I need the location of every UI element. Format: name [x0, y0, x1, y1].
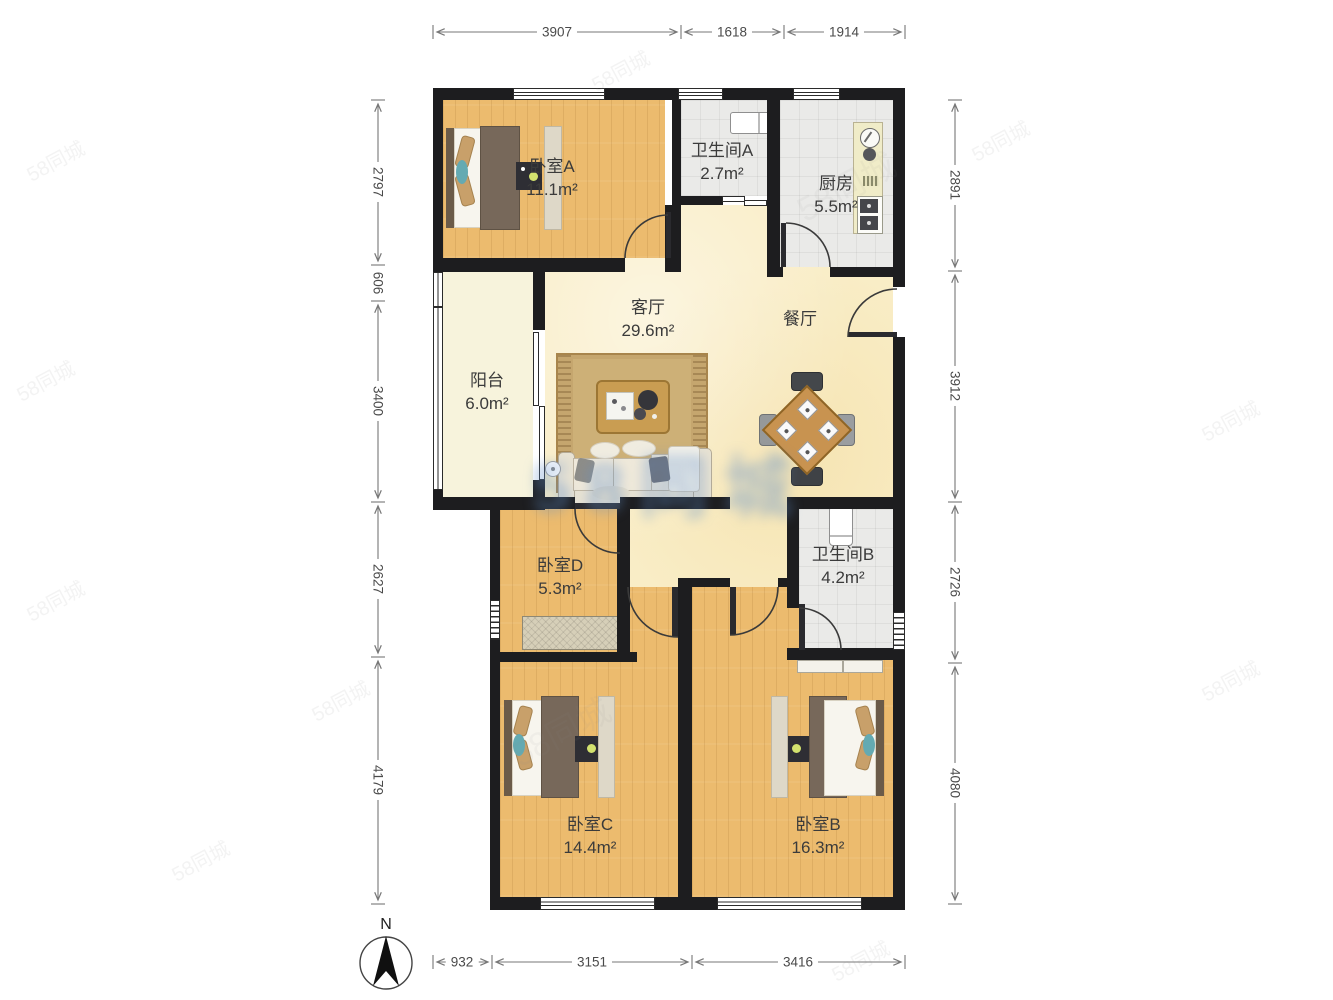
bedroomB-door-arc: [730, 587, 778, 635]
room-name: 卧室B: [792, 814, 845, 837]
dim-right-0: 2891: [948, 165, 963, 205]
dim-right-1: 3912: [948, 366, 963, 406]
room-label-living: 客厅 29.6m²: [622, 297, 675, 343]
compass-north-label: N: [380, 916, 392, 934]
room-name: 卫生间B: [812, 544, 874, 567]
dim-top-2: 1914: [824, 25, 864, 40]
floorplan-canvas: 卧室A 11.1m² 卫生间A 2.7m² 厨房 5.5m² 客厅 29.6m²…: [0, 0, 1333, 1000]
dim-left-1: 606: [371, 267, 386, 300]
room-label-balcony: 阳台 6.0m²: [465, 370, 508, 416]
room-label-kitchen: 厨房 5.5m²: [814, 173, 857, 219]
dim-bottom-1: 3151: [572, 955, 612, 970]
room-label-bedroomB: 卧室B 16.3m²: [792, 814, 845, 860]
bedroomA-door-arc: [625, 215, 668, 258]
room-name: 卧室C: [564, 814, 617, 837]
room-area: 4.2m²: [812, 567, 874, 590]
room-area: 29.6m²: [622, 320, 675, 343]
dim-left-4: 4179: [371, 760, 386, 800]
room-area: 5.5m²: [814, 196, 857, 219]
bathB-door-arc: [799, 608, 841, 650]
watermark-center: 58同城: [532, 433, 808, 532]
room-name: 阳台: [465, 370, 508, 393]
room-label-bedroomD: 卧室D 5.3m²: [537, 555, 583, 601]
room-area: 2.7m²: [691, 163, 753, 186]
dim-bottom-2: 3416: [778, 955, 818, 970]
room-label-bedroomA: 卧室A 11.1m²: [526, 156, 578, 202]
room-name: 卧室D: [537, 555, 583, 578]
room-area: 5.3m²: [537, 578, 583, 601]
entry-door-arc: [848, 289, 897, 337]
dim-top-1: 1618: [712, 25, 752, 40]
room-name: 客厅: [622, 297, 675, 320]
room-name: 卫生间A: [691, 140, 753, 163]
room-label-bedroomC: 卧室C 14.4m²: [564, 814, 617, 860]
room-area: 6.0m²: [465, 393, 508, 416]
compass: [360, 936, 412, 989]
dim-right-2: 2726: [948, 562, 963, 602]
dim-bottom-0: 932: [446, 955, 479, 970]
dim-left-2: 3400: [371, 381, 386, 421]
dim-left-0: 2797: [371, 162, 386, 202]
room-name: 餐厅: [783, 309, 817, 332]
room-name: 卧室A: [526, 156, 578, 179]
dim-left-3: 2627: [371, 559, 386, 599]
room-area: 16.3m²: [792, 837, 845, 860]
room-label-bathA: 卫生间A 2.7m²: [691, 140, 753, 186]
dim-top-0: 3907: [537, 25, 577, 40]
room-name: 厨房: [814, 173, 857, 196]
room-label-dining: 餐厅: [783, 309, 817, 332]
room-label-bathB: 卫生间B 4.2m²: [812, 544, 874, 590]
room-area: 14.4m²: [564, 837, 617, 860]
bedroomC-door-arc: [628, 587, 678, 637]
dim-right-3: 4080: [948, 763, 963, 803]
room-area: 11.1m²: [526, 179, 578, 202]
